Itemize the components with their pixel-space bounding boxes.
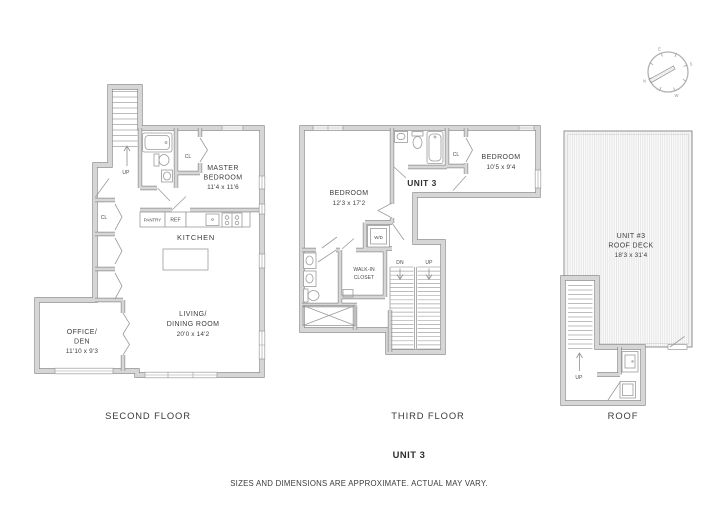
compass-needle — [649, 66, 675, 83]
svg-text:DEN: DEN — [74, 339, 90, 346]
footer-disclaimer: SIZES AND DIMENSIONS ARE APPROXIMATE. AC… — [230, 479, 488, 488]
third-floor-bathroom-2 — [304, 253, 320, 302]
toilet-icon — [154, 154, 159, 166]
door-swing — [158, 188, 171, 201]
stairs-icon — [113, 92, 138, 167]
compass-s: S — [690, 62, 693, 67]
bedroom2-dims: 10'5 x 9'4 — [487, 164, 516, 171]
closet-door — [115, 204, 122, 230]
closet-label: CL — [101, 215, 108, 221]
svg-text:BEDROOM: BEDROOM — [204, 175, 243, 182]
pantry-label: PANTRY — [144, 218, 161, 223]
down-arrow-icon — [426, 269, 432, 280]
door-swing — [392, 223, 404, 240]
up-arrow-icon — [124, 146, 130, 166]
closet-door — [115, 238, 122, 264]
roof-deck-dims: 18'3 x 31'4 — [615, 252, 648, 259]
third-floor-plan: DN UP W/D — [302, 126, 541, 421]
office-dims: 11'10 x 9'3 — [66, 348, 98, 355]
bedroom1-label: BEDROOM — [330, 190, 369, 197]
svg-text:CLOSET: CLOSET — [354, 275, 375, 281]
second-floor-plan: UP — [37, 87, 265, 421]
closet-door — [200, 138, 208, 162]
living-room-label: LIVING/ — [179, 311, 207, 318]
compass-w: W — [675, 93, 679, 98]
sink-icon — [304, 253, 317, 269]
office-label: OFFICE/ — [67, 329, 97, 336]
double-door — [123, 313, 130, 355]
floor-plan-sheet: UP — [0, 0, 720, 509]
compass-e: E — [658, 47, 661, 52]
master-bedroom-label: MASTER — [207, 165, 239, 172]
footer: UNIT 3 SIZES AND DIMENSIONS ARE APPROXIM… — [230, 449, 488, 488]
deck-door-opening — [668, 345, 687, 350]
svg-text:DINING ROOM: DINING ROOM — [167, 321, 220, 328]
double-door — [378, 203, 392, 218]
ref-label: REF — [170, 218, 180, 224]
roof-plan: UP UNIT #3 ROOF DECK 18'3 x 31'4 ROOF — [563, 131, 692, 421]
closet-door — [466, 138, 473, 162]
third-floor-title: THIRD FLOOR — [391, 410, 464, 421]
bedroom2-label: BEDROOM — [482, 154, 521, 161]
door-swing — [318, 250, 336, 262]
up-label: UP — [425, 260, 433, 266]
bedroom1-dims: 12'3 x 17'2 — [333, 200, 366, 207]
roof-deck-label: UNIT #3 — [617, 233, 646, 240]
stairwell-icon — [390, 267, 441, 349]
third-floor-bathroom — [394, 132, 443, 179]
skylight-icon — [303, 306, 355, 326]
dn-label: DN — [396, 260, 404, 266]
door-swing — [342, 239, 354, 250]
second-floor-title: SECOND FLOOR — [105, 410, 191, 421]
down-arrow-icon — [397, 269, 403, 280]
sink-icon — [304, 271, 317, 287]
door-swing — [322, 237, 337, 248]
up-label: UP — [575, 375, 583, 381]
roof-title: ROOF — [608, 410, 639, 421]
compass-n: N — [643, 79, 646, 84]
door-swing — [172, 197, 186, 211]
up-label: UP — [122, 170, 130, 176]
svg-text:ROOF DECK: ROOF DECK — [608, 243, 653, 250]
floor-plan-drawing: UP — [0, 0, 720, 509]
closet-label: CL — [453, 152, 460, 158]
kitchen-label: KITCHEN — [177, 233, 215, 242]
toilet-icon — [412, 132, 423, 137]
living-room-dims: 20'0 x 14'2 — [177, 331, 210, 338]
master-bedroom-dims: 11'4 x 11'6 — [207, 184, 239, 191]
kitchen-island — [163, 249, 208, 270]
closet-door — [115, 273, 122, 299]
cabinet-icon — [622, 352, 638, 373]
unit-label: UNIT 3 — [407, 178, 437, 188]
toilet-icon — [304, 289, 309, 302]
second-floor-bathroom — [143, 133, 173, 201]
door-swing — [453, 176, 466, 191]
walkin-closet-label: WALK-IN — [353, 267, 375, 273]
door-swing — [394, 167, 406, 178]
kitchen-sink-icon — [206, 214, 219, 226]
compass-icon: N E S W — [643, 47, 693, 99]
footer-unit-label: UNIT 3 — [393, 449, 426, 460]
closet-label: CL — [185, 154, 192, 160]
wd-label: W/D — [374, 235, 383, 240]
